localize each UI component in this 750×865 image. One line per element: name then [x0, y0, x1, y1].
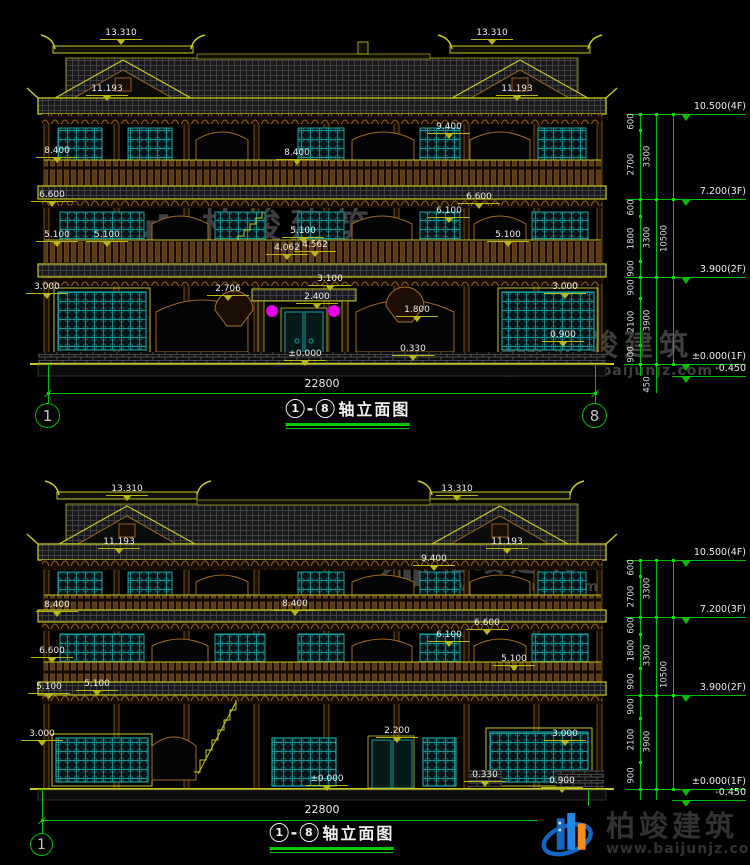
- dim-label-text: 8.400: [265, 599, 325, 609]
- level-label: 10.500(4F): [654, 547, 746, 558]
- axis-bubble: 1: [35, 403, 60, 428]
- dim-label-text: 0.900: [533, 330, 593, 340]
- dim-label: 6.100: [419, 206, 479, 223]
- dim-leader-triangle: [483, 630, 491, 635]
- dim-dot: [655, 694, 658, 697]
- dim-label: 3.100: [300, 274, 360, 291]
- level-marker-triangle: [681, 376, 691, 383]
- level-label: 7.200(3F): [654, 186, 746, 197]
- dim-label: ±0.000: [297, 774, 357, 791]
- dim-label-text: 8.400: [267, 148, 327, 158]
- dim-leader-triangle: [53, 612, 61, 617]
- dim-dot: [655, 198, 658, 201]
- dim-dot: [639, 363, 642, 366]
- dim-leader-triangle: [561, 294, 569, 299]
- level-marker-triangle: [681, 695, 691, 702]
- dim-label-text: 9.400: [404, 554, 464, 564]
- dim-label-text: 6.600: [22, 190, 82, 200]
- dim-label-text: 0.330: [383, 344, 443, 354]
- dim-label-text: 13.310: [427, 484, 487, 494]
- dim-label: 6.100: [419, 630, 479, 647]
- dim-label: 13.310: [97, 484, 157, 501]
- dim-leader-triangle: [115, 549, 123, 554]
- dim-label: 9.400: [404, 554, 464, 571]
- dim-leader-triangle: [301, 361, 309, 366]
- title-suffix: 轴立面图: [338, 396, 410, 420]
- segment-dim: 10500: [661, 216, 670, 262]
- dim-leader-triangle: [561, 741, 569, 746]
- dim-leader-triangle: [93, 691, 101, 696]
- segment-dim: 3300: [644, 633, 653, 679]
- axis-stem: [48, 364, 49, 403]
- dim-dot: [672, 113, 675, 116]
- dim-leader-triangle: [503, 549, 511, 554]
- dim-dot: [639, 198, 642, 201]
- dim-leader-triangle: [313, 304, 321, 309]
- dim-leader-triangle: [323, 786, 331, 791]
- axis-circle-from: 1: [286, 399, 305, 418]
- dim-leader-triangle: [430, 566, 438, 571]
- level-marker-triangle: [681, 277, 691, 284]
- level-label: 10.500(4F): [654, 101, 746, 112]
- dim-label-text: 3.100: [300, 274, 360, 284]
- level-label: 7.200(3F): [654, 604, 746, 615]
- baijun-logo: 柏竣建筑 www.baijunjz.com: [538, 806, 750, 862]
- dim-label-text: 5.100: [478, 230, 538, 240]
- dim-leader-triangle: [488, 40, 496, 45]
- dim-leader-triangle: [53, 242, 61, 247]
- dim-label: 2.400: [287, 292, 347, 309]
- dim-label: 0.330: [455, 770, 515, 787]
- dim-label-text: 11.193: [77, 84, 137, 94]
- level-label: 3.900(2F): [654, 264, 746, 275]
- baijun-logo-icon: [538, 806, 600, 862]
- level-label: -0.450: [654, 787, 746, 798]
- dim-label: 3.000: [535, 729, 595, 746]
- level-marker-triangle: [681, 114, 691, 121]
- dim-leader-triangle: [445, 642, 453, 647]
- dim-label-text: 8.400: [27, 146, 87, 156]
- level-label: -0.450: [654, 363, 746, 374]
- overall-dim-line: [48, 393, 595, 394]
- dim-label: 5.100: [484, 654, 544, 671]
- dim-label: 11.193: [487, 84, 547, 101]
- dim-leader-triangle: [445, 218, 453, 223]
- drawing2-title: 1 - 8 轴立面图: [270, 820, 395, 853]
- dim-label: 4.562: [285, 240, 345, 257]
- dim-label-text: 0.330: [455, 770, 515, 780]
- segment-dim: 3300: [644, 565, 653, 611]
- axis-circle-to: 8: [299, 823, 318, 842]
- dim-leader-triangle: [393, 738, 401, 743]
- dim-label-text: 6.600: [22, 646, 82, 656]
- dim-leader-triangle: [48, 658, 56, 663]
- dim-leader-triangle: [117, 40, 125, 45]
- dim-label: 5.100: [77, 230, 137, 247]
- dim-leader-triangle: [558, 788, 566, 793]
- chain-line: [640, 560, 641, 800]
- level-label: ±0.000(1F): [654, 351, 746, 362]
- dim-label: 8.400: [267, 148, 327, 165]
- cad-canvas: 柏竣建筑 www.baijunjz.com 柏竣建筑 www.baijunjz.…: [0, 0, 750, 865]
- dim-label: 8.400: [27, 600, 87, 617]
- dim-label-text: 9.400: [419, 122, 479, 132]
- dim-leader-triangle: [413, 317, 421, 322]
- title-dash: -: [307, 399, 314, 418]
- overall-width-label: 22800: [305, 377, 340, 390]
- dim-leader-triangle: [481, 782, 489, 787]
- dim-dot: [639, 215, 642, 218]
- dim-leader-triangle: [291, 611, 299, 616]
- dim-dot: [655, 788, 658, 791]
- segment-dim: 2700: [628, 141, 637, 187]
- chain-line: [640, 114, 641, 376]
- dim-leader-triangle: [293, 160, 301, 165]
- dim-label-text: 5.100: [484, 654, 544, 664]
- dim-label-text: 1.800: [387, 305, 447, 315]
- chain-line: [673, 560, 674, 789]
- dim-dot: [639, 788, 642, 791]
- overall-width-label: 22800: [305, 803, 340, 816]
- dim-label-text: ±0.000: [275, 349, 335, 359]
- title-underline: [270, 847, 394, 850]
- dim-dot: [655, 276, 658, 279]
- dim-label: ±0.000: [275, 349, 335, 366]
- dim-label-text: 4.562: [285, 240, 345, 250]
- dim-leader-triangle: [53, 158, 61, 163]
- title-suffix: 轴立面图: [322, 820, 394, 844]
- footer-brand: 柏竣建筑: [606, 812, 750, 841]
- dim-leader-triangle: [510, 666, 518, 671]
- dim-label-text: 11.193: [89, 537, 149, 547]
- segment-dim: 10500: [661, 651, 670, 697]
- title-underline: [286, 423, 410, 426]
- dim-leader-triangle: [559, 342, 567, 347]
- dim-dot: [672, 198, 675, 201]
- dim-dot: [672, 788, 675, 791]
- dim-label: 11.193: [477, 537, 537, 554]
- dim-label-text: 13.310: [462, 28, 522, 38]
- dim-label-text: 3.000: [17, 282, 77, 292]
- dim-dot: [672, 559, 675, 562]
- dim-leader-triangle: [48, 202, 56, 207]
- axis-circle-from: 1: [270, 823, 289, 842]
- dim-label-text: 11.193: [477, 537, 537, 547]
- dim-dot: [639, 297, 642, 300]
- dim-leader-triangle: [224, 296, 232, 301]
- segment-dim: 3300: [644, 133, 653, 179]
- dim-dot: [655, 363, 658, 366]
- dim-dot: [672, 616, 675, 619]
- dim-label: 13.310: [91, 28, 151, 45]
- dim-label-text: 6.600: [449, 192, 509, 202]
- dim-leader-triangle: [38, 741, 46, 746]
- dim-dot: [639, 616, 642, 619]
- dim-label-text: 6.600: [457, 618, 517, 628]
- dim-label-text: 3.000: [535, 729, 595, 739]
- dim-label-text: 8.400: [27, 600, 87, 610]
- drawing-title-text: 1 - 8 轴立面图: [286, 396, 411, 420]
- dim-leader-triangle: [45, 694, 53, 699]
- level-marker-triangle: [681, 199, 691, 206]
- dim-label: 5.100: [478, 230, 538, 247]
- dim-label-text: 6.100: [419, 630, 479, 640]
- dim-leader-triangle: [103, 96, 111, 101]
- level-label: ±0.000(1F): [654, 776, 746, 787]
- dim-label: 3.000: [17, 282, 77, 299]
- dim-label: 0.330: [383, 344, 443, 361]
- segment-dim: 600: [628, 99, 637, 145]
- dim-label: 13.310: [462, 28, 522, 45]
- drawing1-title: 1 - 8 轴立面图: [286, 396, 411, 429]
- dim-label-text: 5.100: [273, 226, 333, 236]
- dim-label-text: ±0.000: [297, 774, 357, 784]
- dim-label-text: 3.000: [535, 282, 595, 292]
- dim-label: 8.400: [27, 146, 87, 163]
- dim-leader-triangle: [326, 286, 334, 291]
- dim-label: 13.310: [427, 484, 487, 501]
- dim-leader-triangle: [513, 96, 521, 101]
- segment-dim: 900: [628, 331, 637, 377]
- dim-label-text: 0.900: [532, 776, 592, 786]
- title-underline: [286, 428, 410, 429]
- dim-leader-triangle: [43, 294, 51, 299]
- dim-label: 2.200: [367, 726, 427, 743]
- level-marker-triangle: [681, 617, 691, 624]
- footer-site: www.baijunjz.com: [606, 841, 750, 857]
- dim-leader-triangle: [445, 134, 453, 139]
- dim-leader-triangle: [409, 356, 417, 361]
- dim-leader-triangle: [123, 496, 131, 501]
- drawing-title-text: 1 - 8 轴立面图: [270, 820, 395, 844]
- dim-label-text: 5.100: [19, 682, 79, 692]
- dim-dot: [672, 694, 675, 697]
- dim-dot: [655, 616, 658, 619]
- dim-label: 0.900: [532, 776, 592, 793]
- dim-label-text: 3.000: [12, 729, 72, 739]
- level-marker-triangle: [681, 560, 691, 567]
- annotations-layer: 13.31013.31011.19311.1939.4008.4008.4006…: [0, 0, 750, 865]
- dim-label: 0.900: [533, 330, 593, 347]
- dim-label: 2.706: [198, 284, 258, 301]
- dim-label-text: 6.100: [419, 206, 479, 216]
- dim-dot: [639, 633, 642, 636]
- dim-label: 6.600: [22, 646, 82, 663]
- title-dash: -: [291, 823, 298, 842]
- dim-label: 9.400: [419, 122, 479, 139]
- dim-dot: [639, 761, 642, 764]
- dim-label: 11.193: [89, 537, 149, 554]
- dim-dot: [655, 559, 658, 562]
- dim-dot: [672, 363, 675, 366]
- dim-dot: [639, 344, 642, 347]
- dim-label-text: 2.400: [287, 292, 347, 302]
- dim-label-text: 2.706: [198, 284, 258, 294]
- dim-label: 5.100: [19, 682, 79, 699]
- dim-dot: [639, 276, 642, 279]
- dim-label: 8.400: [265, 599, 325, 616]
- dim-label: 1.800: [387, 305, 447, 322]
- dim-leader-triangle: [504, 242, 512, 247]
- dim-label-text: 11.193: [487, 84, 547, 94]
- axis-bubble: 1: [30, 833, 53, 856]
- chain-line: [656, 560, 657, 800]
- axis-stem: [595, 364, 596, 403]
- axis-bubble: 8: [582, 403, 607, 428]
- dim-dot: [639, 113, 642, 116]
- dim-dot: [639, 717, 642, 720]
- dim-dot: [639, 260, 642, 263]
- dim-label: 11.193: [77, 84, 137, 101]
- dim-dot: [672, 276, 675, 279]
- title-underline: [270, 852, 394, 853]
- segment-dim: 3900: [644, 297, 653, 343]
- dim-label-text: 2.200: [367, 726, 427, 736]
- segment-dim: 450: [644, 361, 653, 407]
- dim-label-text: 13.310: [97, 484, 157, 494]
- chain-line: [673, 114, 674, 364]
- axis-stem: [42, 789, 43, 833]
- dim-label-text: 13.310: [91, 28, 151, 38]
- segment-dim: 900: [628, 752, 637, 798]
- dim-leader-triangle: [103, 242, 111, 247]
- dim-dot: [639, 559, 642, 562]
- segment-dim: 3300: [644, 215, 653, 261]
- axis-circle-to: 8: [315, 399, 334, 418]
- dim-label-text: 5.100: [77, 230, 137, 240]
- dim-dot: [639, 129, 642, 132]
- segment-dim: 3900: [644, 719, 653, 765]
- dim-dot: [639, 694, 642, 697]
- dim-label: 6.600: [22, 190, 82, 207]
- dim-leader-triangle: [453, 496, 461, 501]
- dim-label: 3.000: [535, 282, 595, 299]
- dim-label: 3.000: [12, 729, 72, 746]
- dim-dot: [639, 667, 642, 670]
- dim-dot: [655, 113, 658, 116]
- dim-leader-triangle: [311, 252, 319, 257]
